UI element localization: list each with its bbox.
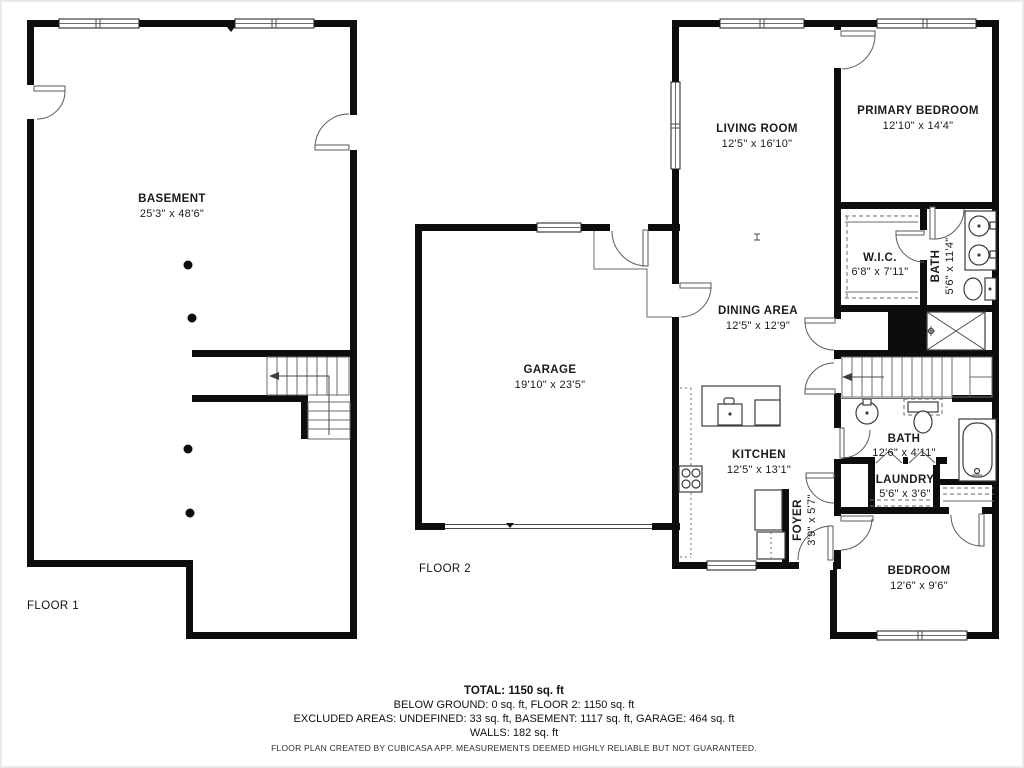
garage-vehicle-door: [445, 523, 652, 529]
floor2-stairs: [842, 357, 992, 397]
floor1-plan: BASEMENT 25'3" x 48'6" FLOOR 1: [26, 19, 358, 639]
stove: [679, 466, 702, 492]
garage-to-dining-door: [680, 283, 711, 317]
room-dims-primary-bedroom: 12'10" x 14'4": [883, 120, 954, 132]
room-label-primary-bath: BATH: [930, 250, 942, 283]
stair-direction-arrow: [842, 373, 852, 381]
floor-plan-page: BASEMENT 25'3" x 48'6" FLOOR 1: [0, 0, 1024, 768]
hall-bath-door: [840, 428, 870, 458]
room-dims-bath: 12'6" x 4'11": [872, 447, 935, 459]
room-dims-foyer: 3'9" x 5'7": [806, 494, 818, 545]
wall-tick: [227, 27, 235, 32]
vanity-double-sink: [965, 211, 996, 270]
primary-bedroom-door: [841, 31, 875, 69]
ceiling-fixture-icon: [754, 234, 760, 240]
summary-block: TOTAL: 1150 sq. ft BELOW GROUND: 0 sq. f…: [271, 685, 757, 753]
room-dims-basement: 25'3" x 48'6": [140, 208, 204, 220]
room-dims-wic: 6'8" x 7'11": [852, 266, 909, 278]
bedroom-door-right: [951, 514, 984, 546]
basement-window: [59, 19, 139, 28]
room-dims-primary-bath: 5'6" x 11'4": [944, 238, 956, 295]
floor1-label: FLOOR 1: [27, 600, 79, 612]
summary-line1: BELOW GROUND: 0 sq. ft, FLOOR 2: 1150 sq…: [394, 699, 635, 711]
room-label-living: LIVING ROOM: [716, 123, 798, 135]
room-label-foyer: FOYER: [792, 499, 804, 541]
foyer-closets: [755, 490, 785, 559]
room-label-wic: W.I.C.: [863, 252, 897, 264]
basement-window: [235, 19, 314, 28]
shower: [927, 312, 985, 350]
bathtub: [959, 419, 996, 481]
stair-entry-door: [805, 363, 835, 394]
basement-right-door: [315, 114, 358, 150]
room-dims-garage: 19'10" x 23'5": [515, 379, 586, 391]
room-dims-living: 12'5" x 16'10": [722, 138, 793, 150]
room-label-laundry: LAUNDRY: [876, 474, 935, 486]
summary-line3: WALLS: 182 sq. ft: [470, 727, 558, 739]
primary-toilet: [964, 278, 996, 300]
bath-toilet: [904, 399, 942, 433]
room-label-basement: BASEMENT: [138, 193, 206, 205]
bedroom-door-left: [841, 516, 873, 550]
bedroom-closet: [943, 488, 994, 501]
room-label-primary-bedroom: PRIMARY BEDROOM: [857, 105, 979, 117]
floor1-walls: [27, 20, 357, 639]
summary-disclaimer: FLOOR PLAN CREATED BY CUBICASA APP. MEAS…: [271, 743, 757, 753]
summary-line2: EXCLUDED AREAS: UNDEFINED: 33 sq. ft, BA…: [294, 713, 735, 725]
room-label-kitchen: KITCHEN: [732, 449, 786, 461]
kitchen-island: [702, 386, 780, 426]
floor-plan-drawing: BASEMENT 25'3" x 48'6" FLOOR 1: [2, 2, 1024, 768]
room-dims-bedroom: 12'6" x 9'6": [890, 580, 948, 592]
stair-direction-arrow: [269, 372, 279, 380]
floor2-label: FLOOR 2: [419, 563, 471, 575]
room-label-garage: GARAGE: [524, 364, 577, 376]
room-dims-laundry: 5'6" x 3'6": [879, 488, 930, 500]
bath-sink: [856, 399, 878, 424]
garage-entry-landing: [594, 231, 672, 317]
basement-left-door: [26, 85, 65, 119]
floor2-plan: LIVING ROOM 12'5" x 16'10" PRIMARY BEDRO…: [415, 19, 999, 640]
support-columns: [184, 261, 197, 518]
garage-entry-door: [612, 230, 648, 266]
laundry-appliance-lines: [870, 500, 933, 506]
room-label-bath: BATH: [888, 433, 921, 445]
room-dims-kitchen: 12'5" x 13'1": [727, 464, 791, 476]
dining-closet-door: [805, 318, 835, 350]
room-dims-dining: 12'5" x 12'9": [726, 320, 790, 332]
summary-total: TOTAL: 1150 sq. ft: [464, 685, 564, 697]
primary-bath-door: [930, 207, 964, 239]
room-label-dining: DINING AREA: [718, 305, 798, 317]
room-label-bedroom: BEDROOM: [888, 565, 951, 577]
